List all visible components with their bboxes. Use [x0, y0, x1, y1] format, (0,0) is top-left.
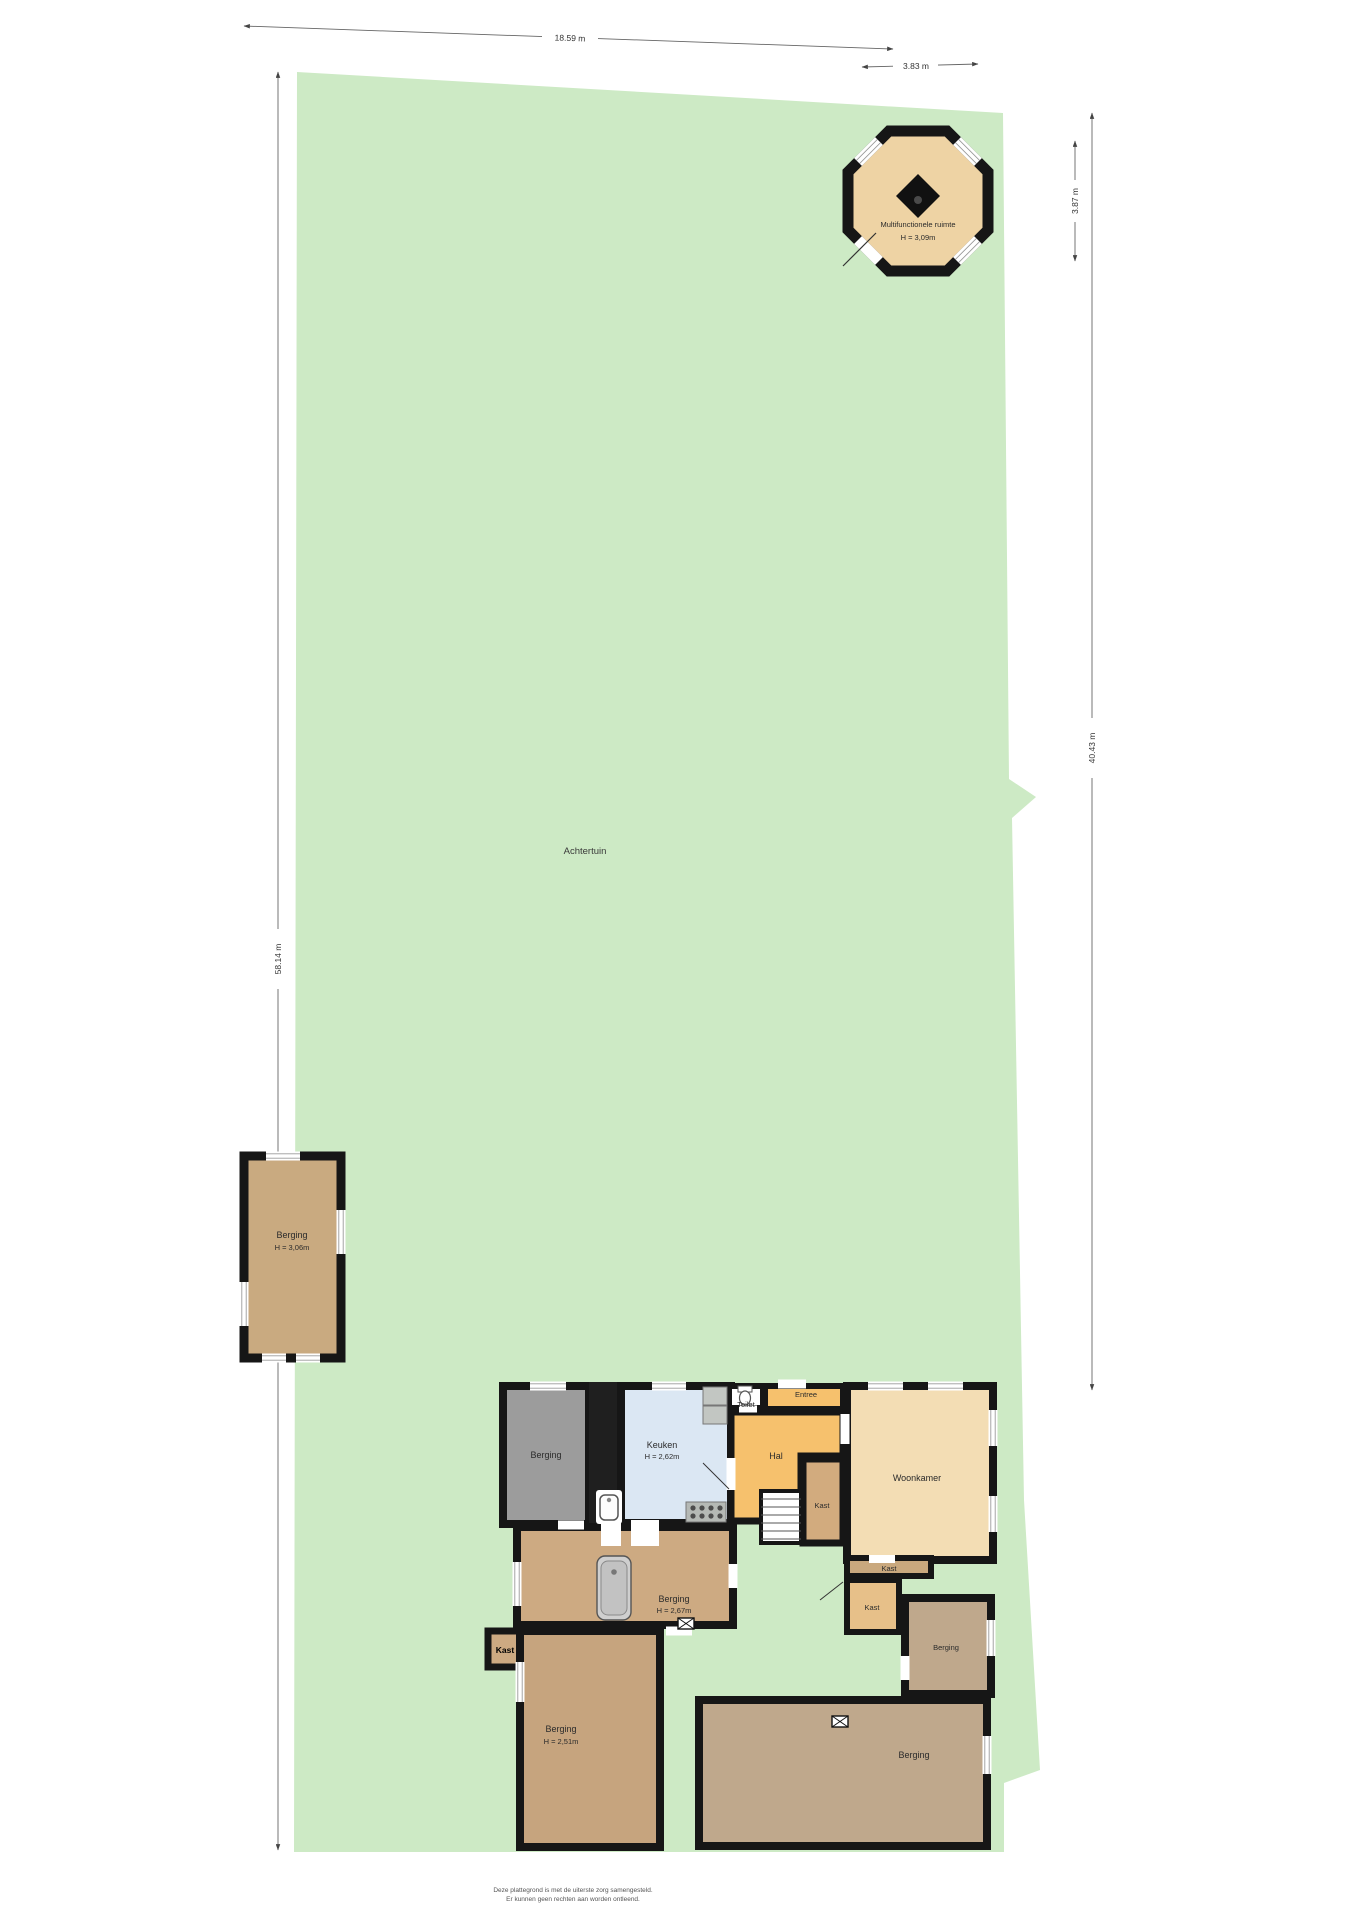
sink-icon [596, 1490, 622, 1524]
room-label-keuken: Keuken [647, 1440, 678, 1450]
floorplan-svg: Achtertuin 18.59 m 3.83 m 3.87 m 40.43 m… [0, 0, 1358, 1920]
room-label-berging-bottom-left: Berging [545, 1724, 576, 1734]
octagon-stove-center [914, 196, 922, 204]
room-label-shed-berging: Berging [276, 1230, 307, 1240]
room-height-keuken: H = 2,62m [645, 1452, 680, 1461]
dim-label-top-right: 3.83 m [903, 61, 929, 71]
footer-disclaimer: Deze plattegrond is met de uiterste zorg… [493, 1887, 653, 1903]
footer-line-2: Er kunnen geen rechten aan worden ontlee… [506, 1896, 640, 1903]
room-label-kast-b: Kast [881, 1564, 897, 1573]
room-berging-bottom-left [520, 1631, 660, 1847]
room-label-berging-mid-right: Berging [933, 1643, 959, 1652]
room-label-kast-a: Kast [814, 1501, 830, 1510]
room-label-entree: Entree [795, 1390, 817, 1399]
shed-walls [244, 1156, 341, 1358]
room-label-kast-c: Kast [864, 1603, 880, 1612]
floorplan-page: Achtertuin 18.59 m 3.83 m 3.87 m 40.43 m… [0, 0, 1358, 1920]
room-label-berging-annex: Berging [530, 1450, 561, 1460]
shed: Berging H = 3,06m [242, 1154, 343, 1360]
dim-label-right-small: 3.87 m [1070, 188, 1080, 214]
stove-icon [686, 1502, 726, 1522]
room-height-multifunctionele-ruimte: H = 3,09m [901, 233, 936, 242]
bathtub-icon [597, 1556, 631, 1620]
dim-label-top: 18.59 m [554, 32, 585, 43]
room-height-berging-bottom-left: H = 2,51m [544, 1737, 579, 1746]
garden-label: Achtertuin [564, 846, 607, 857]
vent-icon-2 [832, 1716, 848, 1727]
kitchen-counter [703, 1387, 727, 1424]
room-label-berging-mid: Berging [658, 1594, 689, 1604]
room-label-berging-bottom-right: Berging [898, 1750, 929, 1760]
room-height-berging-mid: H = 2,67m [657, 1606, 692, 1615]
room-label-toilet: Toilet [737, 1400, 755, 1409]
stairs [761, 1491, 801, 1543]
footer-line-1: Deze plattegrond is met de uiterste zorg… [493, 1887, 653, 1894]
room-height-shed-berging: H = 3,06m [275, 1243, 310, 1252]
room-label-kast-bold: Kast [496, 1645, 515, 1655]
room-label-multifunctionele-ruimte: Multifunctionele ruimte [880, 220, 955, 229]
room-label-hal: Hal [769, 1451, 783, 1461]
dim-label-right-large: 40.43 m [1087, 733, 1097, 764]
vent-icon-1 [678, 1618, 694, 1629]
room-label-woonkamer: Woonkamer [893, 1473, 941, 1483]
multifunctional-room: Multifunctionele ruimte H = 3,09m [843, 131, 988, 271]
dim-label-left: 58.14 m [273, 944, 283, 975]
